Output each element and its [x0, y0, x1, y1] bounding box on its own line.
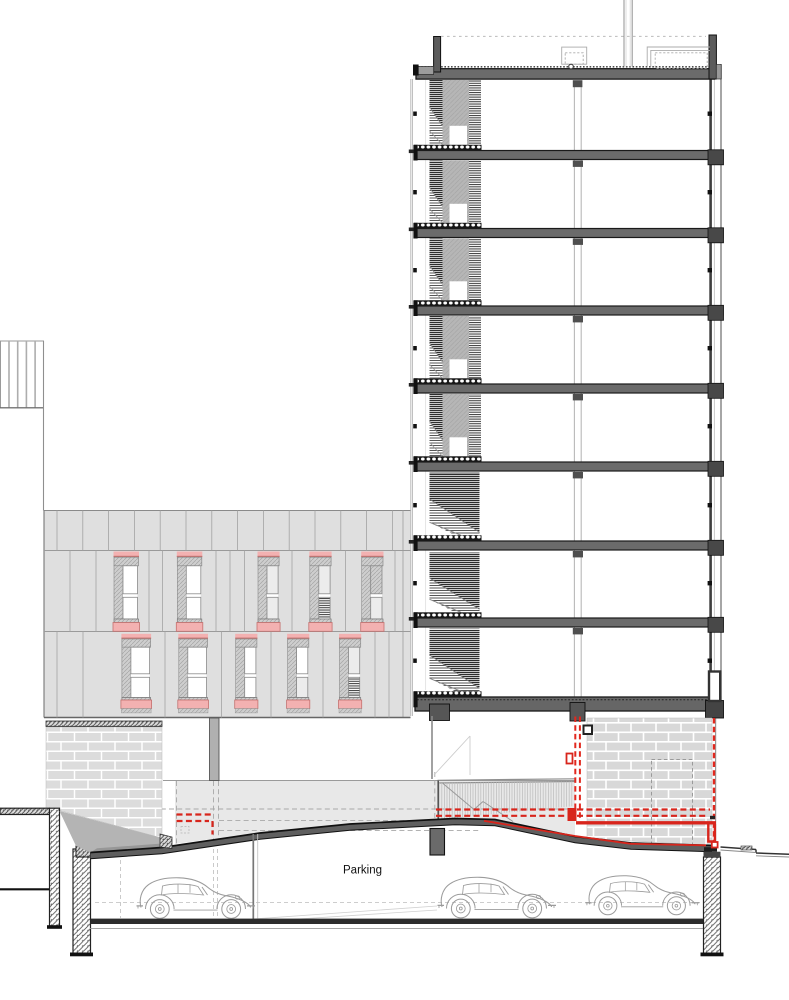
svg-text:Parking: Parking — [343, 865, 382, 877]
